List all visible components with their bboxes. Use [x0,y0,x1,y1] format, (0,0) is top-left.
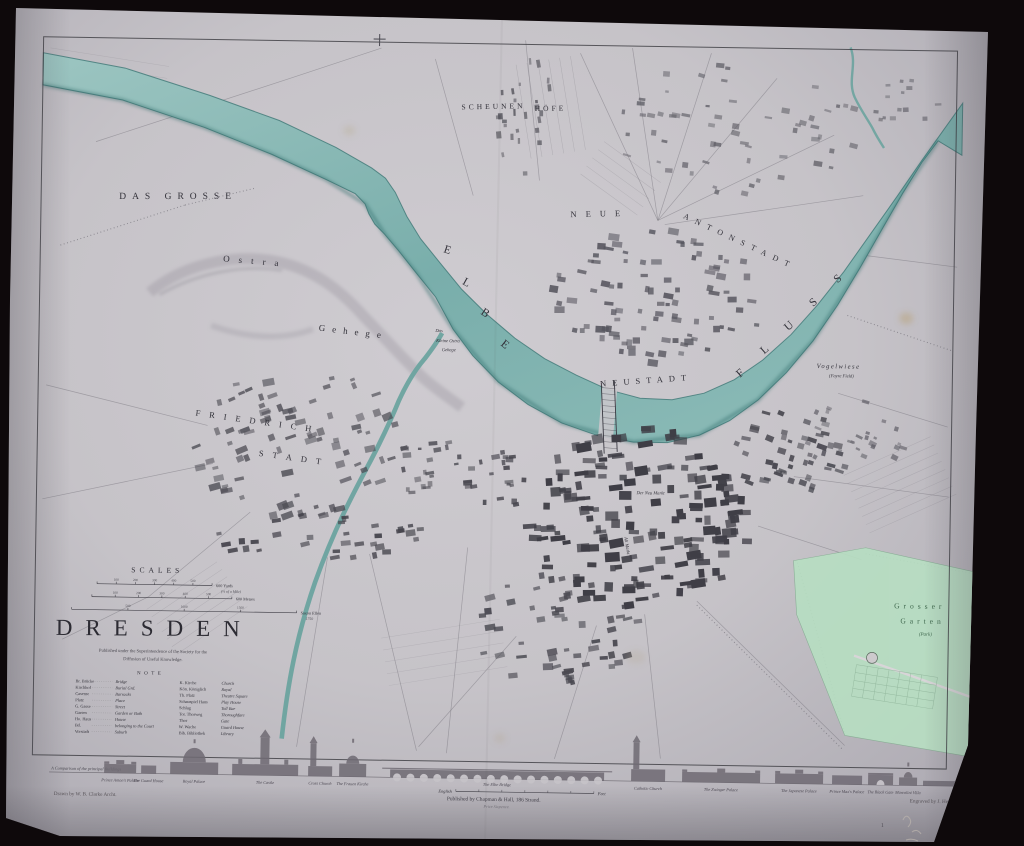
map-label: (Fayre Field) [829,373,854,378]
map-label: Das [434,328,443,333]
reference-meaning: Burial Grd. [115,685,135,690]
scale-tick: 300 [159,591,164,595]
scale-tick: 400 [171,579,176,583]
map-label: NEUE [570,208,629,219]
reference-meaning: Toll Bar [221,706,235,711]
reference-meaning: Place [114,698,125,703]
map-label: Gehege [442,347,456,352]
vignette-left [0,0,70,846]
scale-tick: 200 [136,591,141,595]
reference-meaning: Barracks [115,692,131,697]
reference-term: Bib. Bibliothek [179,730,206,735]
scales-title: SCALES [131,565,183,575]
building-label: The Castle [256,780,274,785]
reference-meaning: Guard House [221,725,244,730]
reference-term: W. Wache [179,724,196,729]
reference-title: NOTE [137,671,164,676]
scale-unit: 600 Yards [216,583,233,588]
reference-term: Schauspiel Haus [179,699,208,704]
reference-meaning: Thoroughfare [221,712,245,717]
map-subtitle: Diffusion of Useful Knowledge. [123,656,182,662]
building-silhouette [868,773,893,785]
reference-meaning: House [114,717,126,722]
reference-term: Caserne [75,691,89,696]
scale-unit: 600 Metres [236,596,255,601]
map-label: DAS GROSSE [119,192,237,202]
reference-term: Vorstadt [75,729,90,734]
building-silhouette [832,775,862,784]
reference-meaning: Garden or Bath [115,710,142,715]
scale-note: (⅓ of a Mile) [221,590,242,594]
map-label: HÖFE [535,103,567,113]
reference-meaning: Suburb [115,729,128,734]
scale-tick: 500 [206,592,211,596]
vignette-bottom [0,786,1024,846]
scale-tick: 400 [183,592,188,596]
building-label: The Guard House [134,778,164,783]
map-label: Vogelwiese [817,363,861,371]
scale-tick: 1000 [181,605,188,609]
reference-meaning: Royal [220,687,232,692]
scale-tick: 500 [125,604,130,608]
vignette-right [924,0,1024,846]
scale-tick: 1500 [237,606,244,610]
reference-term: K. Kirche [179,680,196,685]
park-palace [866,652,877,663]
map-label: Der Neu Markt [635,490,665,495]
reference-term: Schlag [179,705,192,710]
reference-term: Tor. Thorweg [179,711,203,716]
building-silhouette [141,765,156,773]
reference-meaning: Bridge [115,679,127,684]
building-silhouette [104,760,136,774]
reference-term: Br. Brücke [75,678,94,683]
scale-unit: Saxon Ellen [301,610,322,615]
map-label: Kleine Ostra [435,338,460,343]
reference-meaning: Street [115,704,126,709]
reference-term: G. Gasse [75,704,91,709]
reference-meaning: belonging to the Court [115,723,155,729]
dresden-antique-map: DAS GROSSEOstraGehegeDasKleine OstraGehe… [0,0,1024,846]
reference-meaning: Play House [220,700,241,705]
building-label: Cross Church [308,781,331,786]
reference-term: Bd. [75,722,81,727]
photo-backdrop: DAS GROSSEOstraGehegeDasKleine OstraGehe… [0,0,1024,846]
reference-meaning: Gate [221,718,230,723]
scale-tick: 200 [133,578,138,582]
scale-tick: 100 [113,591,118,595]
reference-meaning: Library [220,731,234,736]
reference-term: Th. Platz [179,693,195,698]
reference-term: Platz [75,697,84,702]
scale-note: 1750 [306,617,314,621]
map-title: DRESDEN [56,615,253,641]
reference-meaning: Church [221,681,234,686]
reference-term: Kirchhof [75,685,91,690]
reference-meaning: Theatre Square [221,693,247,698]
scale-tick: 500 [190,579,195,583]
map-label: SCHEUNEN [461,101,525,111]
reference-term: Ho. Haus [75,716,92,721]
reference-term: Kön. Königlich [179,686,207,691]
reference-term: Garten [75,710,88,715]
building-label: The Frauen Kirche [336,781,368,787]
scale-tick: 300 [152,578,157,582]
scale-tick: 100 [114,578,119,582]
reference-term: Thor [179,718,188,723]
building-label: Royal Palace [182,779,206,784]
